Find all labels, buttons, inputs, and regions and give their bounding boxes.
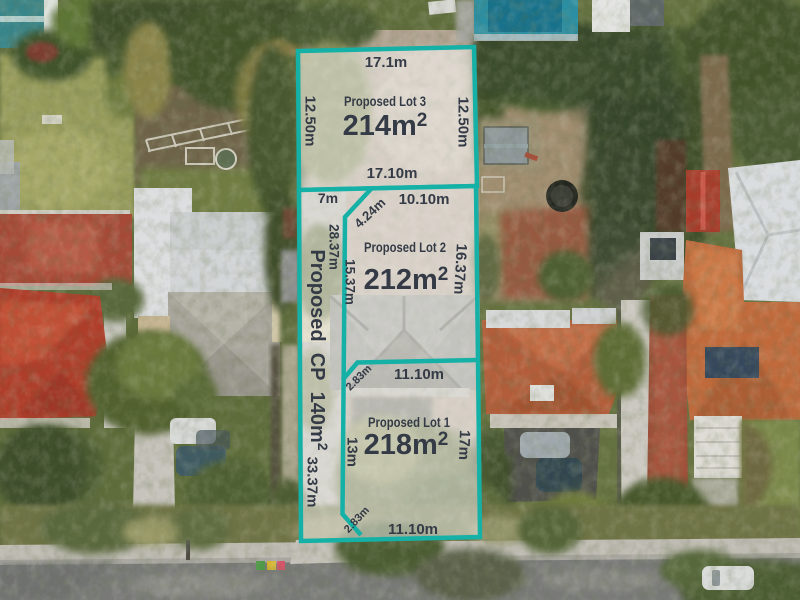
svg-text:15.37m: 15.37m bbox=[343, 259, 358, 305]
svg-text:12.50m: 12.50m bbox=[455, 97, 472, 148]
svg-text:11.10m: 11.10m bbox=[394, 366, 444, 383]
svg-text:7m: 7m bbox=[318, 190, 338, 206]
svg-text:16.37m: 16.37m bbox=[450, 243, 470, 295]
svg-text:10.10m: 10.10m bbox=[399, 191, 450, 208]
svg-text:Proposed Lot 1: Proposed Lot 1 bbox=[368, 415, 450, 430]
svg-text:Proposed CP 140m2: Proposed CP 140m2 bbox=[306, 249, 331, 450]
svg-text:214m2: 214m2 bbox=[343, 110, 428, 142]
svg-text:Proposed Lot 2: Proposed Lot 2 bbox=[364, 240, 446, 255]
svg-text:17.1m: 17.1m bbox=[365, 54, 408, 71]
svg-text:11.10m: 11.10m bbox=[388, 521, 438, 538]
svg-text:12.50m: 12.50m bbox=[302, 96, 319, 147]
svg-text:33.37m: 33.37m bbox=[304, 457, 321, 508]
svg-text:17m: 17m bbox=[455, 430, 473, 461]
svg-text:Proposed Lot 3: Proposed Lot 3 bbox=[344, 94, 426, 109]
svg-text:218m2: 218m2 bbox=[364, 429, 449, 461]
svg-text:13m: 13m bbox=[344, 437, 361, 467]
svg-text:17.10m: 17.10m bbox=[367, 165, 418, 182]
svg-text:212m2: 212m2 bbox=[364, 264, 449, 296]
